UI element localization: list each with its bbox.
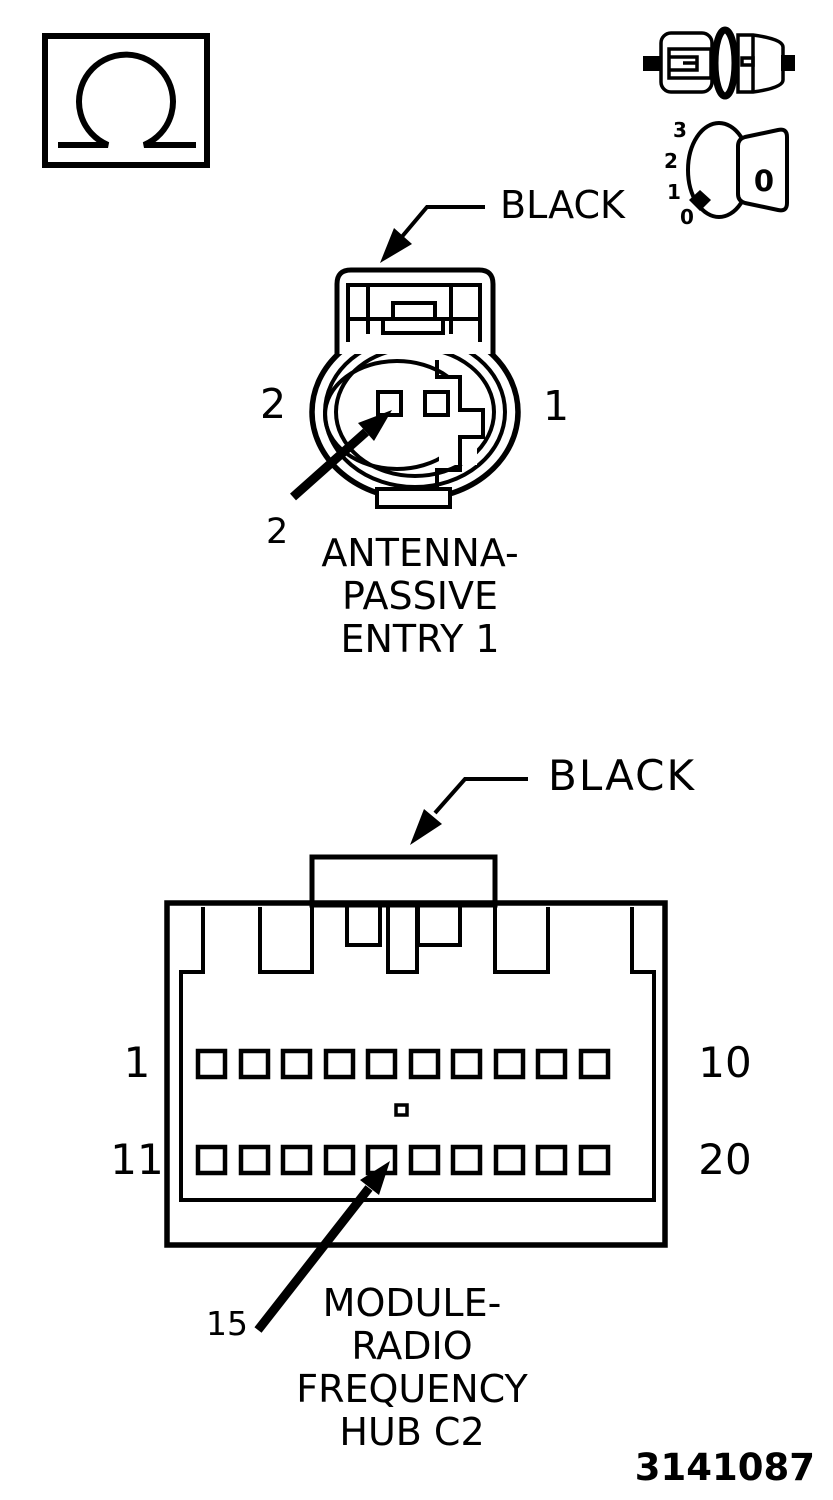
- caption-line: ANTENNA-: [270, 532, 570, 575]
- ignition-pos-3: 3: [673, 118, 687, 142]
- caption-line: ENTRY 1: [270, 618, 570, 661]
- hub-connector-drawing: [167, 857, 665, 1245]
- connector-bottom-caption: MODULE- RADIO FREQUENCY HUB C2: [262, 1282, 562, 1454]
- hub-pin-11-label: 11: [105, 1136, 169, 1183]
- hub-pin-20-label: 20: [690, 1136, 760, 1183]
- diagram-line-art: 3 2 1 0 0: [0, 0, 833, 1500]
- black-callout-arrow-top: [380, 207, 485, 263]
- caption-line: RADIO: [262, 1325, 562, 1368]
- connector-top-caption: ANTENNA- PASSIVE ENTRY 1: [270, 532, 570, 661]
- hub-pin-10-label: 10: [690, 1039, 760, 1086]
- antenna-pin-2-label: 2: [260, 382, 286, 428]
- hub-pin-1-label: 1: [105, 1039, 169, 1086]
- caption-line: FREQUENCY: [262, 1368, 562, 1411]
- connector-diagram-page: 3 2 1 0 0: [0, 0, 833, 1500]
- ignition-pos-2: 2: [664, 149, 678, 173]
- figure-number: 3141087: [615, 1447, 815, 1488]
- connector-top-color-label: BLACK: [500, 184, 625, 227]
- caption-line: HUB C2: [262, 1411, 562, 1454]
- ignition-off-icon: 3 2 1 0 0: [664, 118, 787, 229]
- ignition-key-label: 0: [754, 164, 774, 198]
- hub-pin-row-1: [198, 1051, 608, 1077]
- antenna-pin-1-label: 1: [543, 384, 569, 430]
- ohm-meter-icon: [45, 36, 207, 165]
- connector-disconnect-icon: [643, 30, 795, 96]
- ignition-pos-0: 0: [680, 205, 694, 229]
- caption-line: MODULE-: [262, 1282, 562, 1325]
- black-callout-arrow-bottom: [410, 779, 528, 845]
- caption-line: PASSIVE: [270, 575, 570, 618]
- hub-pin-callout-label: 15: [204, 1306, 250, 1343]
- antenna-connector-drawing: [312, 270, 518, 507]
- pin2-callout-arrow: [293, 410, 392, 497]
- ignition-pos-1: 1: [667, 180, 681, 204]
- hub-pin-row-2: [198, 1147, 608, 1173]
- connector-bottom-color-label: BLACK: [548, 752, 696, 799]
